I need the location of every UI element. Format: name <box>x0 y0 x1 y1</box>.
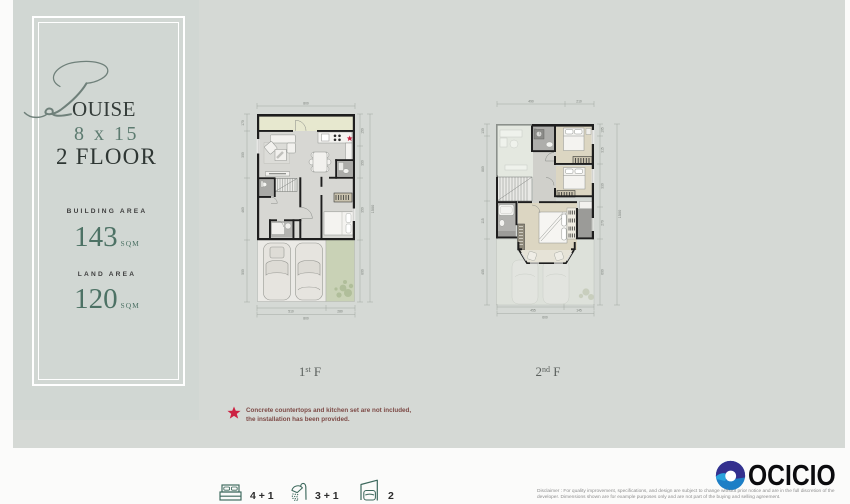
svg-text:170: 170 <box>241 120 245 126</box>
svg-text:130: 130 <box>481 128 485 134</box>
svg-text:315: 315 <box>601 147 605 153</box>
svg-text:150: 150 <box>361 128 365 134</box>
svg-text:455: 455 <box>481 269 485 275</box>
svg-text:1500: 1500 <box>371 205 375 213</box>
svg-text:500: 500 <box>241 269 245 275</box>
svg-text:800: 800 <box>361 269 365 275</box>
svg-text:600: 600 <box>542 315 548 319</box>
svg-text:350: 350 <box>361 160 365 166</box>
svg-text:600: 600 <box>601 269 605 275</box>
svg-text:510: 510 <box>288 310 294 314</box>
svg-text:800: 800 <box>303 102 309 106</box>
svg-text:115: 115 <box>481 218 485 223</box>
svg-text:350: 350 <box>361 207 365 213</box>
svg-text:1500: 1500 <box>618 210 622 218</box>
svg-text:880: 880 <box>481 166 485 172</box>
svg-text:300: 300 <box>241 152 245 158</box>
svg-text:105: 105 <box>601 127 605 133</box>
svg-text:455: 455 <box>530 309 536 313</box>
svg-text:460: 460 <box>241 207 245 213</box>
svg-text:270: 270 <box>601 220 605 226</box>
svg-text:490: 490 <box>528 100 534 104</box>
svg-text:280: 280 <box>337 310 343 314</box>
svg-text:800: 800 <box>303 316 309 320</box>
svg-text:210: 210 <box>576 100 582 104</box>
svg-text:145: 145 <box>576 309 582 313</box>
svg-text:330: 330 <box>601 183 605 189</box>
